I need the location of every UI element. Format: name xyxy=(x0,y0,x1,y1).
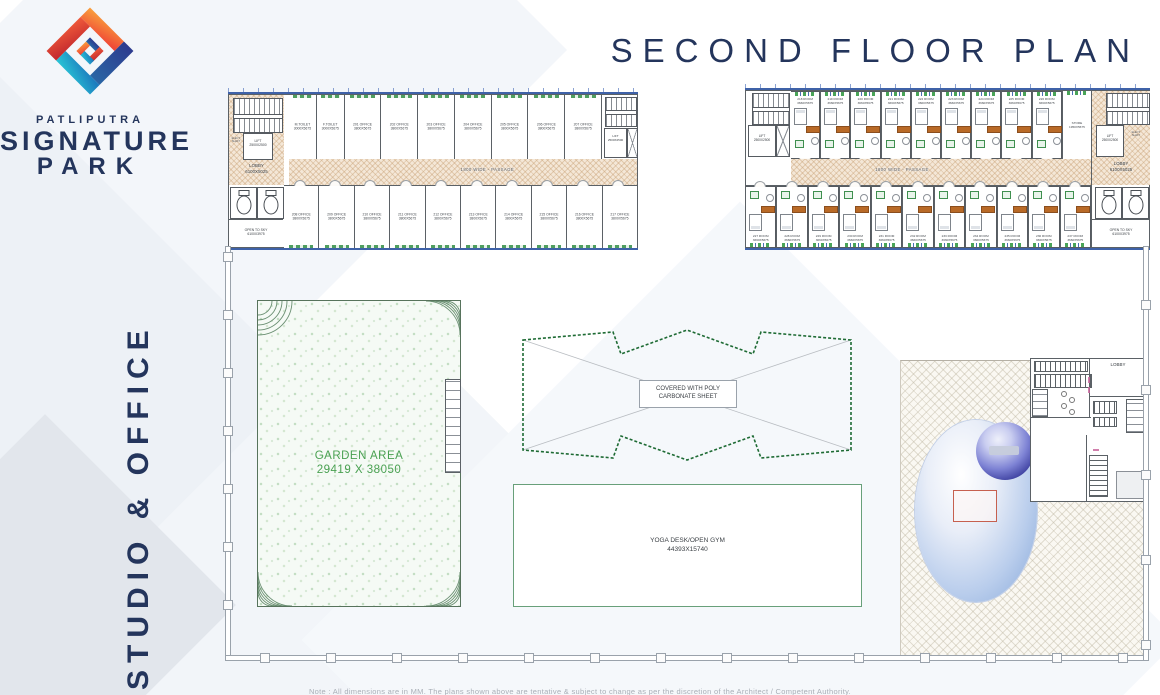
wall-column xyxy=(854,653,864,663)
toilet-block xyxy=(1093,417,1117,427)
office-unit: 203 OFFICE 3800X5675 xyxy=(417,95,454,159)
wall-column xyxy=(223,484,233,494)
right-wing-left-cap: LIFT 2500X2500 xyxy=(746,91,791,159)
bed-symbol xyxy=(938,214,951,231)
bed-symbol xyxy=(1001,214,1014,231)
bed-symbol xyxy=(749,214,762,231)
staircase xyxy=(1106,93,1150,125)
lift-room: LIFT 2500X2500 xyxy=(1096,125,1124,157)
table-symbol xyxy=(871,137,879,145)
window-strip xyxy=(845,243,866,247)
window-strip xyxy=(502,245,526,248)
window-strip xyxy=(395,245,419,248)
table-symbol xyxy=(932,137,940,145)
bed-symbol xyxy=(780,214,793,231)
wardrobe-symbol xyxy=(792,206,806,213)
window-strip xyxy=(1033,243,1054,247)
table-symbol xyxy=(829,194,837,202)
wardrobe-symbol xyxy=(806,126,820,133)
door-arc xyxy=(577,180,589,186)
bed-symbol xyxy=(1032,214,1045,231)
room-unit: 231 ROOM 3660X5675 xyxy=(871,186,902,248)
window-strip xyxy=(1007,92,1027,96)
floor-plan-page: PATLIPUTRA SIGNATURE PARK SECOND FLOOR P… xyxy=(0,0,1160,695)
bath-symbol xyxy=(1033,191,1042,199)
window-strip xyxy=(497,95,522,98)
open-to-sky: OPEN TO SKY 6100X3975 xyxy=(1092,219,1150,248)
pool-marker-rect xyxy=(953,490,997,522)
bath-symbol xyxy=(795,140,804,148)
window-strip xyxy=(321,95,340,98)
garden-area: GARDEN AREA 29419 X 38050 xyxy=(257,300,461,607)
window-strip xyxy=(971,243,992,247)
canopy-label: COVERED WITH POLY CARBONATE SHEET xyxy=(639,380,737,408)
window-strip xyxy=(856,92,876,96)
table-symbol xyxy=(766,194,774,202)
studio-row-top: 218 ROOM 3660X5675219 ROOM 3660X5675220 … xyxy=(791,91,1091,160)
lift-room: LIFT 2500X2500 xyxy=(748,125,776,157)
window-strip xyxy=(1037,92,1057,96)
shaft-label: ELECT. SHAFT xyxy=(1125,131,1147,137)
shaft-xbox xyxy=(776,125,790,157)
canopy-structure: COVERED WITH POLY CARBONATE SHEET xyxy=(517,320,857,470)
office-unit: 208 OFFICE 3800X5675 xyxy=(284,186,318,248)
unit-label: 233 ROOM 3660X5675 xyxy=(935,234,964,242)
bed-symbol xyxy=(975,108,988,125)
window-strip xyxy=(460,95,485,98)
window-strip xyxy=(750,243,771,247)
window-strip xyxy=(908,243,929,247)
office-unit: 206 OFFICE 3800X5675 xyxy=(527,95,564,159)
room-unit: 219 ROOM 3660X5675 xyxy=(820,91,850,159)
wardrobe-symbol xyxy=(761,206,775,213)
unit-label: 201 OFFICE 3800X5675 xyxy=(345,123,381,132)
table-symbol xyxy=(986,194,994,202)
shaft-xbox xyxy=(627,128,638,158)
table-symbol xyxy=(955,194,963,202)
office-unit: 216 OFFICE 3800X5675 xyxy=(566,186,601,248)
shaft-label: ELECT. SHAFT xyxy=(230,137,242,143)
bath-symbol xyxy=(886,140,895,148)
studio-office-vertical-label: STUDIO & OFFICE xyxy=(122,318,156,690)
table-symbol xyxy=(1022,137,1030,145)
lift-car xyxy=(1095,187,1122,219)
wall-column xyxy=(223,600,233,610)
open-to-sky: OPEN TO SKY 6100X3975 xyxy=(229,219,283,248)
bed-symbol xyxy=(875,214,888,231)
unit-label: 203 OFFICE 3800X5675 xyxy=(418,123,454,132)
locker-rack xyxy=(1089,455,1108,497)
unit-label: 221 ROOM 3660X5675 xyxy=(882,97,910,105)
wall-column xyxy=(223,310,233,320)
table-symbol xyxy=(892,194,900,202)
unit-label: 224 ROOM 3660X5675 xyxy=(972,97,1000,105)
bed-symbol xyxy=(945,108,958,125)
bath-symbol xyxy=(1065,191,1074,199)
bath-symbol xyxy=(876,191,885,199)
unit-label: 204 OFFICE 3800X5675 xyxy=(455,123,491,132)
door-arc xyxy=(754,181,766,187)
office-unit: 213 OFFICE 3800X5675 xyxy=(460,186,495,248)
bed-symbol xyxy=(1036,108,1049,125)
window-strip xyxy=(608,245,632,248)
garden-label: GARDEN AREA 29419 X 38050 xyxy=(258,449,460,478)
staircase xyxy=(605,97,637,127)
bed-symbol xyxy=(1005,108,1018,125)
unit-label: 228 ROOM 3660X5675 xyxy=(777,234,806,242)
locker-rack xyxy=(1034,374,1092,388)
table-symbol xyxy=(1081,194,1089,202)
wall-column xyxy=(590,653,600,663)
table-symbol xyxy=(797,194,805,202)
wall-column xyxy=(1141,640,1151,650)
lift-car xyxy=(1122,187,1149,219)
office-unit: 204 OFFICE 3800X5675 xyxy=(454,95,491,159)
open-to-sky-label: OPEN TO SKY 6100X3975 xyxy=(1092,228,1150,237)
staircase xyxy=(752,93,790,125)
table-symbol xyxy=(902,137,910,145)
pool-lobby-block: LOBBY xyxy=(1030,358,1148,502)
window-strip xyxy=(825,92,845,96)
unit-label: 210 OFFICE 3800X5675 xyxy=(355,213,389,222)
wardrobe-symbol xyxy=(987,126,1001,133)
unit-label: 215 OFFICE 3800X5675 xyxy=(532,213,566,222)
lift-room: LIFT 2500X2500 xyxy=(243,133,273,160)
wardrobe-symbol xyxy=(981,206,995,213)
passage-label: 1800 WIDE - PASSAGE xyxy=(857,167,947,172)
sphere-highlight xyxy=(989,446,1019,455)
unit-label: 216 OFFICE 3800X5675 xyxy=(567,213,601,222)
lobby-label: LOBBY 6100X5025 xyxy=(229,163,284,174)
window-strip xyxy=(387,95,412,98)
window-strip xyxy=(431,245,455,248)
shelf-unit xyxy=(1032,389,1048,417)
unit-label: 229 ROOM 3660X5675 xyxy=(809,234,838,242)
window-strip xyxy=(1065,243,1086,247)
bath-symbol xyxy=(825,140,834,148)
wardrobe-symbol xyxy=(950,206,964,213)
unit-label: 236 ROOM 3660X5675 xyxy=(1029,234,1058,242)
left-wing-right-cap: LIFT 2500X2500 xyxy=(601,95,638,159)
table-symbol xyxy=(1049,194,1057,202)
table-symbol xyxy=(841,137,849,145)
boundary-wall-left xyxy=(225,246,231,659)
window-strip xyxy=(289,245,313,248)
wall-column xyxy=(223,426,233,436)
table-symbol xyxy=(1053,137,1061,145)
wall-column xyxy=(392,653,402,663)
room-unit: 218 ROOM 3660X5675 xyxy=(791,91,820,159)
unit-label: 217 OFFICE 3800X5675 xyxy=(603,213,637,222)
window-strip xyxy=(1002,243,1023,247)
office-unit: 201 OFFICE 3800X5675 xyxy=(344,95,381,159)
wall-column xyxy=(656,653,666,663)
wall-column xyxy=(223,252,233,262)
office-unit: 214 OFFICE 3800X5675 xyxy=(495,186,530,248)
room-unit: 229 ROOM 3660X5675 xyxy=(808,186,839,248)
lift-car xyxy=(230,187,257,219)
bath-symbol xyxy=(970,191,979,199)
office-unit: 209 OFFICE 3800X5675 xyxy=(318,186,353,248)
table-symbol xyxy=(962,137,970,145)
bed-symbol xyxy=(824,108,837,125)
bath-symbol xyxy=(1006,140,1015,148)
wall-column xyxy=(524,653,534,663)
right-wing-right-cap: LIFT 2500X2500 ELECT. SHAFT LOBBY 6100X5… xyxy=(1091,91,1150,247)
wall-column xyxy=(1118,653,1128,663)
bed-symbol xyxy=(1064,214,1077,231)
wardrobe-symbol xyxy=(1013,206,1027,213)
office-unit: 202 OFFICE 3800X5675 xyxy=(380,95,417,159)
bath-symbol xyxy=(855,140,864,148)
door-mark xyxy=(1088,377,1090,383)
room-unit: 224 ROOM 3660X5675 xyxy=(971,91,1001,159)
wall-column xyxy=(223,542,233,552)
lift-label: LIFT 2500X2500 xyxy=(1097,134,1123,142)
lift-label: LIFT 2500X2500 xyxy=(749,134,775,142)
garden-label-text: GARDEN AREA xyxy=(258,449,460,463)
stool xyxy=(1069,409,1075,415)
bath-symbol xyxy=(907,191,916,199)
unit-label: 234 ROOM 3660X5675 xyxy=(966,234,995,242)
office-unit: 205 OFFICE 3800X5675 xyxy=(491,95,528,159)
table-symbol xyxy=(860,194,868,202)
door-arc xyxy=(1069,181,1081,187)
wardrobe-symbol xyxy=(927,126,941,133)
wardrobe-symbol xyxy=(957,126,971,133)
wall-column xyxy=(920,653,930,663)
unit-label: 223 ROOM 3660X5675 xyxy=(942,97,970,105)
studio-row-bottom: 227 ROOM 3660X5675228 ROOM 3660X5675229 … xyxy=(746,185,1091,248)
window-strip xyxy=(572,245,596,248)
office-unit: 217 OFFICE 3800X5675 xyxy=(602,186,637,248)
unit-label: 218 ROOM 3660X5675 xyxy=(791,97,819,105)
lift-room: LIFT 2500X2500 xyxy=(604,128,627,158)
garden-dims: 29419 X 38050 xyxy=(258,463,460,477)
room-unit: 223 ROOM 3660X5675 xyxy=(941,91,971,159)
wall-column xyxy=(1141,385,1151,395)
window-strip xyxy=(782,243,803,247)
unit-label: 219 ROOM 3660X5675 xyxy=(821,97,849,105)
room-unit: 234 ROOM 3660X5675 xyxy=(965,186,996,248)
lift-car xyxy=(257,187,284,219)
table-symbol xyxy=(992,137,1000,145)
window-strip xyxy=(293,95,312,98)
interior-wall xyxy=(1089,396,1147,397)
unit-label: 206 OFFICE 3800X5675 xyxy=(528,123,564,132)
unit-label: 213 OFFICE 3800X5675 xyxy=(461,213,495,222)
unit-label: 209 OFFICE 3800X5675 xyxy=(319,213,353,222)
unit-label: 222 ROOM 3660X5675 xyxy=(912,97,940,105)
unit-label: 231 ROOM 3660X5675 xyxy=(872,234,901,242)
unit-label: 208 OFFICE 3800X5675 xyxy=(284,213,318,222)
room-unit: 227 ROOM 3660X5675 xyxy=(746,186,776,248)
wardrobe-symbol xyxy=(887,206,901,213)
wardrobe-symbol xyxy=(836,126,850,133)
unit-label: 227 ROOM 3660X5675 xyxy=(746,234,775,242)
room-unit: 221 ROOM 3660X5675 xyxy=(881,91,911,159)
table-symbol xyxy=(811,137,819,145)
wall-column xyxy=(788,653,798,663)
window-strip xyxy=(876,243,897,247)
brand-patliputra: PATLIPUTRA xyxy=(0,114,180,126)
unit-label: 214 OFFICE 3800X5675 xyxy=(496,213,530,222)
office-unit: 207 OFFICE 3800X5675 xyxy=(564,95,601,159)
bath-symbol xyxy=(1002,191,1011,199)
door-arc xyxy=(506,180,518,186)
door-arc xyxy=(912,181,924,187)
window-strip xyxy=(939,243,960,247)
unit-label: M.TOILET 3000X5675 xyxy=(289,123,316,132)
bath-symbol xyxy=(1037,140,1046,148)
unit-label: 205 OFFICE 3800X5675 xyxy=(492,123,528,132)
page-title: SECOND FLOOR PLAN xyxy=(611,32,1140,70)
bath-symbol xyxy=(844,191,853,199)
left-wing-offices: LIFT 2500X2500 ELECT. SHAFT LOBBY 6100X5… xyxy=(228,94,638,248)
window-strip xyxy=(534,95,559,98)
door-arc xyxy=(786,181,798,187)
window-strip xyxy=(571,95,596,98)
room-unit: 222 ROOM 3660X5675 xyxy=(911,91,941,159)
unit-label: 220 ROOM 3660X5675 xyxy=(851,97,879,105)
yoga-label-text: YOGA DESK/OPEN GYM xyxy=(514,536,861,545)
unit-label: STORE 1950X5675 xyxy=(1063,121,1091,129)
door-arc xyxy=(817,181,829,187)
toilet-block xyxy=(1093,401,1117,414)
wardrobe-symbol xyxy=(1076,206,1090,213)
jacuzzi-sphere xyxy=(976,422,1034,480)
wall-column xyxy=(326,653,336,663)
door-arc xyxy=(400,180,412,186)
lift-label: LIFT 2500X2500 xyxy=(605,135,626,143)
window-strip xyxy=(360,245,384,248)
unit-label: F.TOILET 3000X5675 xyxy=(317,123,344,132)
toilet-unit: F.TOILET 3000X5675 xyxy=(316,95,344,159)
wall-column xyxy=(223,368,233,378)
bed-symbol xyxy=(843,214,856,231)
wall-column xyxy=(458,653,468,663)
room-unit: 233 ROOM 3660X5675 xyxy=(934,186,965,248)
table-symbol xyxy=(1018,194,1026,202)
window-strip xyxy=(325,245,349,248)
unit-label: 211 OFFICE 3800X5675 xyxy=(390,213,424,222)
disclaimer-note: Note : All dimensions are in MM. The pla… xyxy=(0,687,1160,695)
bed-symbol xyxy=(812,214,825,231)
yoga-label: YOGA DESK/OPEN GYM 44393X15740 xyxy=(514,536,861,554)
unit-label: 232 ROOM 3660X5675 xyxy=(903,234,932,242)
door-arc xyxy=(471,180,483,186)
window-strip xyxy=(886,92,906,96)
bed-symbol xyxy=(906,214,919,231)
unit-label: 226 ROOM 3660X5675 xyxy=(1033,97,1061,105)
room-unit: 237 ROOM 3660X5675 xyxy=(1060,186,1091,248)
door-arc xyxy=(880,181,892,187)
window-strip xyxy=(466,245,490,248)
wardrobe-symbol xyxy=(897,126,911,133)
bed-symbol xyxy=(915,108,928,125)
room-unit: 230 ROOM 3660X5675 xyxy=(839,186,870,248)
room-unit: 236 ROOM 3660X5675 xyxy=(1028,186,1059,248)
bath-symbol xyxy=(813,191,822,199)
room-unit: 226 ROOM 3660X5675 xyxy=(1032,91,1062,159)
wall-column xyxy=(1141,300,1151,310)
patliputra-logo xyxy=(42,2,138,100)
room-unit: 220 ROOM 3660X5675 xyxy=(850,91,880,159)
wall-column xyxy=(722,653,732,663)
locker-rack xyxy=(1034,361,1088,372)
room-unit: 225 ROOM 3660X5675 xyxy=(1001,91,1031,159)
staircase xyxy=(233,98,283,133)
unit-label: 212 OFFICE 3800X5675 xyxy=(426,213,460,222)
yoga-deck: YOGA DESK/OPEN GYM 44393X15740 xyxy=(513,484,862,607)
office-unit: 211 OFFICE 3800X5675 xyxy=(389,186,424,248)
bath-symbol xyxy=(976,140,985,148)
table-symbol xyxy=(923,194,931,202)
store-unit: STORE 1950X5675 xyxy=(1062,91,1091,159)
window-strip xyxy=(350,95,375,98)
door-arc xyxy=(849,181,861,187)
bed-symbol xyxy=(854,108,867,125)
bed-symbol xyxy=(794,108,807,125)
bath-symbol xyxy=(946,140,955,148)
office-unit: 215 OFFICE 3800X5675 xyxy=(531,186,566,248)
window-strip xyxy=(537,245,561,248)
yoga-dims: 44393X15740 xyxy=(514,545,861,554)
pool-lobby-label: LOBBY xyxy=(1091,362,1145,367)
unit-label: 207 OFFICE 3800X5675 xyxy=(565,123,601,132)
boundary-wall-bottom xyxy=(225,655,1149,661)
unit-label: 230 ROOM 3660X5675 xyxy=(840,234,869,242)
right-wing-studios: LIFT 2500X2500 218 ROOM 3660X5675219 ROO… xyxy=(745,90,1150,248)
room-unit: 232 ROOM 3660X5675 xyxy=(902,186,933,248)
window-strip xyxy=(813,243,834,247)
lift-label: LIFT 2500X2500 xyxy=(244,139,272,148)
bath-symbol xyxy=(781,191,790,199)
window-strip xyxy=(976,92,996,96)
wardrobe-symbol xyxy=(1017,126,1031,133)
wardrobe-symbol xyxy=(855,206,869,213)
unit-label: 202 OFFICE 3800X5675 xyxy=(381,123,417,132)
door-arc xyxy=(329,180,341,186)
bed-symbol xyxy=(885,108,898,125)
open-to-sky-label: OPEN TO SKY 6100X3975 xyxy=(229,228,283,237)
window-strip xyxy=(424,95,449,98)
office-row-bottom: 208 OFFICE 3800X5675209 OFFICE 3800X5675… xyxy=(284,185,637,248)
interior-wall xyxy=(1031,417,1091,418)
door-arc xyxy=(943,181,955,187)
office-row-top: M.TOILET 3000X5675F.TOILET 3000X5675201 … xyxy=(289,95,601,160)
wardrobe-symbol xyxy=(1048,126,1062,133)
wall-column xyxy=(1141,555,1151,565)
stool xyxy=(1061,403,1067,409)
bath-symbol xyxy=(916,140,925,148)
toilet-unit: M.TOILET 3000X5675 xyxy=(289,95,316,159)
stool xyxy=(1061,391,1067,397)
interior-wall xyxy=(1086,435,1087,501)
unit-label: 237 ROOM 3660X5675 xyxy=(1061,234,1090,242)
lobby-label: LOBBY 6100X5025 xyxy=(1092,161,1150,172)
window-strip xyxy=(916,92,936,96)
office-unit: 210 OFFICE 3800X5675 xyxy=(354,186,389,248)
door-mark xyxy=(1093,449,1099,451)
wardrobe-symbol xyxy=(866,126,880,133)
stool xyxy=(1069,397,1075,403)
window-strip xyxy=(946,92,966,96)
room-unit: 235 ROOM 3660X5675 xyxy=(997,186,1028,248)
wall-column xyxy=(1141,470,1151,480)
wall-column xyxy=(1052,653,1062,663)
bed-symbol xyxy=(969,214,982,231)
